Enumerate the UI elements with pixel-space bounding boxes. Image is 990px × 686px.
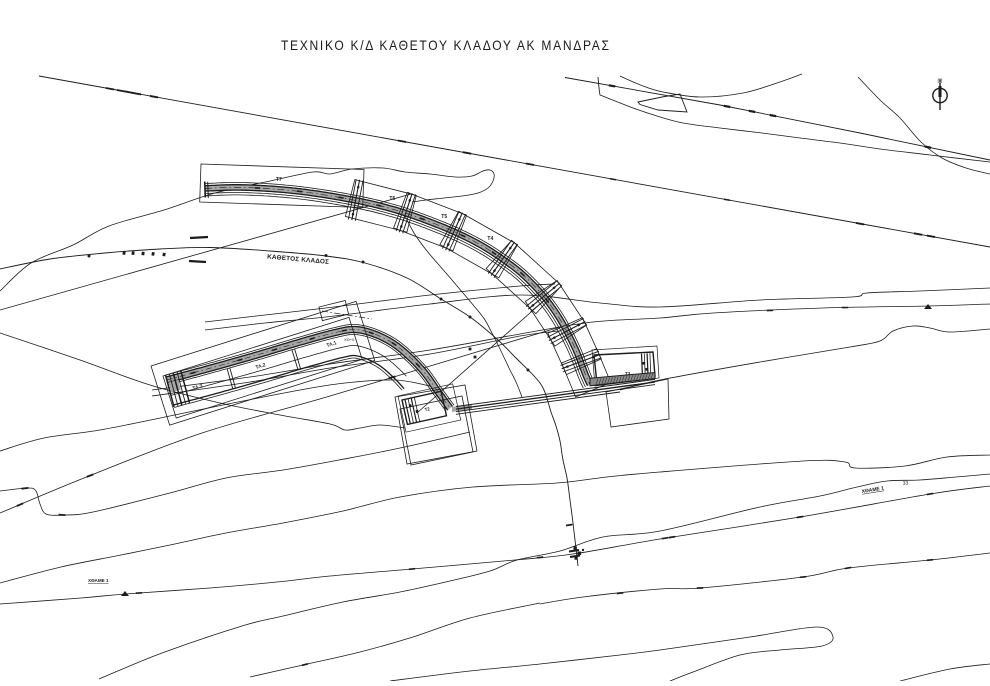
svg-text:ΧΘ+0: ΧΘ+0 [344,337,355,342]
svg-text:ΤΕΧΝΙΚΟ Κ/Δ ΚΑΘΕΤΟΥ ΚΛΑΔΟΥ ΑΚ: ΤΕΧΝΙΚΟ Κ/Δ ΚΑΘΕΤΟΥ ΚΛΑΔΟΥ ΑΚ ΜΑΝΔΡΑΣ [281,37,611,53]
svg-text:ΧΘΑΜΕ 1: ΧΘΑΜΕ 1 [88,578,109,583]
svg-text:Τ7: Τ7 [276,177,282,183]
svg-text:Τ4: Τ4 [487,236,493,242]
svg-text:Τ6: Τ6 [389,196,395,202]
svg-text:Τ5: Τ5 [441,214,447,220]
